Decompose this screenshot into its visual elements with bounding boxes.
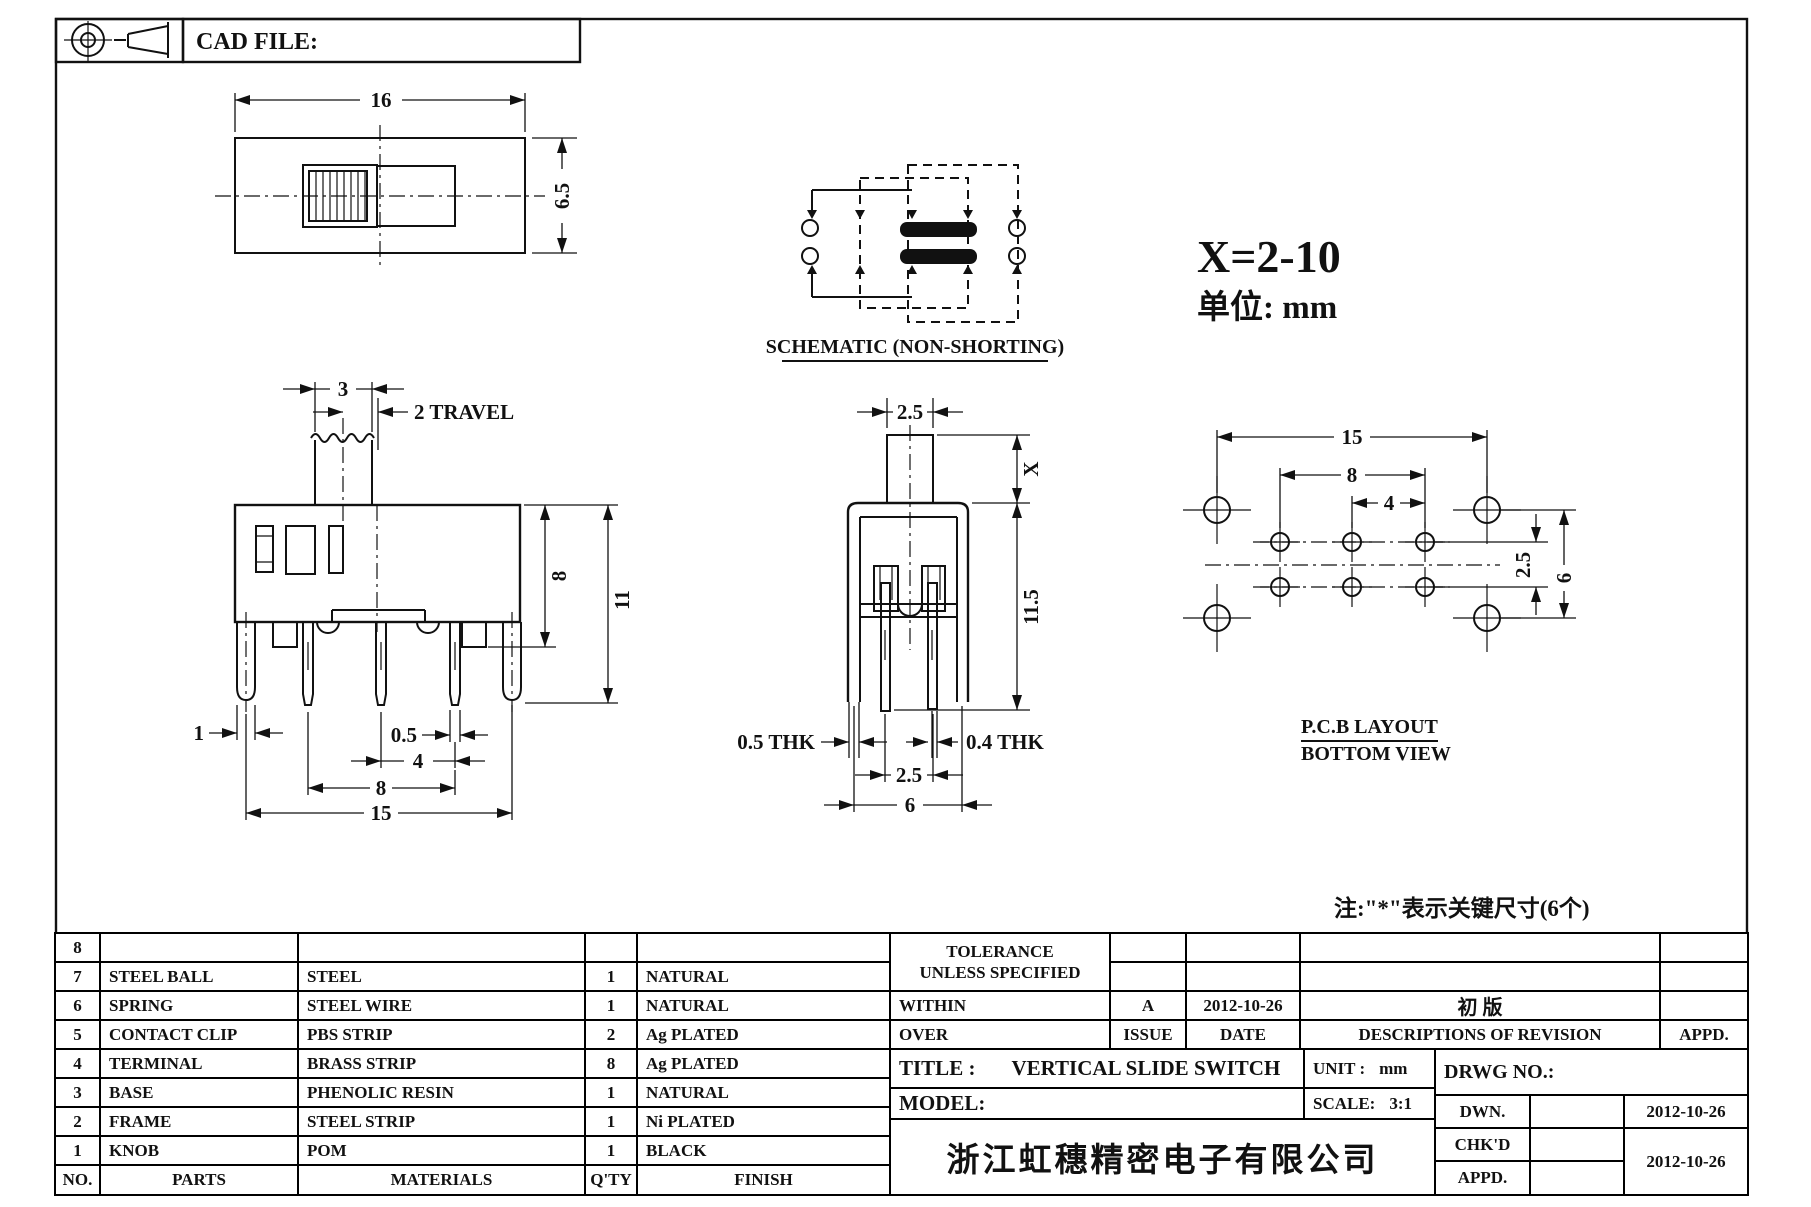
pcb-label-line2: BOTTOM VIEW xyxy=(1301,743,1451,765)
tolerance-line1: TOLERANCE xyxy=(946,941,1053,962)
parts-row-material: STEEL xyxy=(298,962,585,991)
parts-row-qty: 1 xyxy=(585,991,637,1020)
parts-row-part: SPRING xyxy=(100,991,298,1020)
parts-header-no: NO. xyxy=(55,1165,100,1195)
parts-row-no: 6 xyxy=(55,991,100,1020)
model-cell: MODEL: xyxy=(890,1088,1304,1119)
issue-header: ISSUE xyxy=(1110,1020,1186,1049)
revision-empty-cell xyxy=(1186,962,1300,991)
parts-row-no: 5 xyxy=(55,1020,100,1049)
unit-value: mm xyxy=(1379,1059,1407,1079)
scale-value: 3:1 xyxy=(1389,1094,1412,1114)
parts-row-part xyxy=(100,933,298,962)
appd-header: APPD. xyxy=(1660,1020,1748,1049)
parts-row-qty: 2 xyxy=(585,1020,637,1049)
parts-header-qty: Q'TY xyxy=(585,1165,637,1195)
title-value: VERTICAL SLIDE SWITCH xyxy=(1011,1056,1280,1081)
dim-pin-gap: 2.5 xyxy=(896,763,922,787)
schematic-label: SCHEMATIC (NON-SHORTING) xyxy=(766,336,1064,358)
title-block-table: 8 7 STEEL BALL STEEL 1 NATURAL 6 SPRING … xyxy=(55,933,1748,1195)
x-range-note: X=2-10 xyxy=(1197,231,1341,282)
dwn-date: 2012-10-26 xyxy=(1624,1095,1748,1128)
dim-leg-span: 6 xyxy=(905,793,916,817)
chkd-appd-date: 2012-10-26 xyxy=(1624,1128,1748,1195)
dim-total-height: 11 xyxy=(610,590,634,610)
parts-row-no: 1 xyxy=(55,1136,100,1165)
dim-knob-width: 3 xyxy=(338,377,349,401)
title-cell: TITLE : VERTICAL SLIDE SWITCH xyxy=(890,1049,1304,1088)
dwn-signature xyxy=(1530,1095,1624,1128)
scale-cell: SCALE: 3:1 xyxy=(1304,1088,1435,1119)
revision-empty-cell xyxy=(1660,962,1748,991)
parts-row-part: KNOB xyxy=(100,1136,298,1165)
parts-row-part: FRAME xyxy=(100,1107,298,1136)
parts-row-material: STEEL STRIP xyxy=(298,1107,585,1136)
dim-pcb-row-gap: 2.5 xyxy=(1511,552,1535,578)
parts-row-finish: NATURAL xyxy=(637,1078,890,1107)
tolerance-over-label: OVER xyxy=(890,1020,1110,1049)
dim-pcb-pin-pitch: 4 xyxy=(1384,491,1395,515)
dim-top-height: 6.5 xyxy=(550,183,574,209)
tolerance-line2: UNLESS SPECIFIED xyxy=(919,962,1080,983)
parts-row-qty: 8 xyxy=(585,1049,637,1078)
parts-row-part: STEEL BALL xyxy=(100,962,298,991)
pcb-layout: 15 8 4 2.5 6 P.C.B LAYOUT BOTTOM VIEW xyxy=(1183,425,1576,765)
parts-row-no: 8 xyxy=(55,933,100,962)
top-view: 16 6.5 xyxy=(215,87,577,267)
parts-row-finish xyxy=(637,933,890,962)
revision-empty-cell xyxy=(1300,962,1660,991)
revision-appd-empty xyxy=(1660,991,1748,1020)
unit-label: UNIT : xyxy=(1313,1059,1365,1079)
dim-side-body-height: 11.5 xyxy=(1019,589,1043,625)
parts-row-finish: Ag PLATED xyxy=(637,1049,890,1078)
drwg-no-cell: DRWG NO.: xyxy=(1435,1049,1748,1095)
parts-header-parts: PARTS xyxy=(100,1165,298,1195)
projection-symbol-box: CAD FILE: xyxy=(56,19,580,62)
dim-pcb-outer-gap: 6 xyxy=(1552,573,1576,584)
parts-row-material: PBS STRIP xyxy=(298,1020,585,1049)
dim-peg-span: 15 xyxy=(371,801,392,825)
chkd-signature xyxy=(1530,1128,1624,1161)
revision-empty-cell xyxy=(1660,933,1748,962)
descriptions-header: DESCRIPTIONS OF REVISION xyxy=(1300,1020,1660,1049)
dim-stem-height: X xyxy=(1019,461,1043,476)
date-header: DATE xyxy=(1186,1020,1300,1049)
dim-pin-width: 0.5 xyxy=(391,723,417,747)
pcb-label-line1: P.C.B LAYOUT xyxy=(1301,716,1439,738)
parts-row-finish: Ni PLATED xyxy=(637,1107,890,1136)
dim-top-width: 16 xyxy=(371,88,392,112)
parts-row-part: CONTACT CLIP xyxy=(100,1020,298,1049)
revision-empty-cell xyxy=(1186,933,1300,962)
parts-row-qty: 1 xyxy=(585,1136,637,1165)
parts-row-finish: NATURAL xyxy=(637,962,890,991)
scale-label: SCALE: xyxy=(1313,1094,1375,1114)
parts-row-finish: NATURAL xyxy=(637,991,890,1020)
schematic: SCHEMATIC (NON-SHORTING) xyxy=(766,165,1064,361)
dim-pcb-pin-span: 8 xyxy=(1347,463,1358,487)
dim-pin-span: 8 xyxy=(376,776,387,800)
side-view: 2.5 X 11.5 0.5 THK 0.4 THK 2.5 6 xyxy=(737,398,1044,817)
cad-file-label: CAD FILE: xyxy=(196,29,318,55)
parts-row-material xyxy=(298,933,585,962)
parts-row-material: STEEL WIRE xyxy=(298,991,585,1020)
dim-thk-left: 0.5 THK xyxy=(737,730,815,754)
parts-row-qty xyxy=(585,933,637,962)
dim-pin-pitch: 4 xyxy=(413,749,424,773)
parts-row-qty: 1 xyxy=(585,1078,637,1107)
issue-value: A xyxy=(1110,991,1186,1020)
dim-pcb-outer-span: 15 xyxy=(1342,425,1363,449)
parts-header-finish: FINISH xyxy=(637,1165,890,1195)
appd-signature xyxy=(1530,1161,1624,1195)
dim-travel: 2 TRAVEL xyxy=(414,400,514,424)
dwn-label: DWN. xyxy=(1435,1095,1530,1128)
unit-note: 单位: mm xyxy=(1197,288,1337,326)
drawing-sheet: CAD FILE: 16 6.5 SCHEMATIC (N xyxy=(0,0,1811,1207)
parts-row-no: 7 xyxy=(55,962,100,991)
unit-cell: UNIT : mm xyxy=(1304,1049,1435,1088)
issue-date-value: 2012-10-26 xyxy=(1186,991,1300,1020)
parts-row-finish: Ag PLATED xyxy=(637,1020,890,1049)
key-dimension-note: 注:"*"表示关键尺寸(6个) xyxy=(1334,895,1590,921)
parts-row-material: BRASS STRIP xyxy=(298,1049,585,1078)
schematic-arrows xyxy=(807,210,1022,274)
revision-description-value: 初 版 xyxy=(1300,991,1660,1020)
drawing-canvas: CAD FILE: 16 6.5 SCHEMATIC (N xyxy=(0,0,1811,933)
revision-empty-cell xyxy=(1110,933,1186,962)
company-name: 浙江虹穗精密电子有限公司 xyxy=(890,1119,1435,1195)
parts-row-no: 3 xyxy=(55,1078,100,1107)
parts-row-qty: 1 xyxy=(585,962,637,991)
parts-row-part: TERMINAL xyxy=(100,1049,298,1078)
tolerance-within-label: WITHIN xyxy=(890,991,1110,1020)
dim-stem-width: 2.5 xyxy=(897,400,923,424)
front-view: 3 2 TRAVEL 8 11 1 0.5 4 xyxy=(194,377,635,825)
parts-row-material: PHENOLIC RESIN xyxy=(298,1078,585,1107)
dim-thk-right: 0.4 THK xyxy=(966,730,1044,754)
parts-header-materials: MATERIALS xyxy=(298,1165,585,1195)
parts-row-finish: BLACK xyxy=(637,1136,890,1165)
appd-label-2: APPD. xyxy=(1435,1161,1530,1195)
sheet-border xyxy=(56,19,1747,933)
parts-row-material: POM xyxy=(298,1136,585,1165)
parts-row-part: BASE xyxy=(100,1078,298,1107)
parts-row-no: 4 xyxy=(55,1049,100,1078)
dim-body-height: 8 xyxy=(547,571,571,582)
dim-peg-width: 1 xyxy=(194,721,205,745)
revision-empty-cell xyxy=(1300,933,1660,962)
first-angle-projection-icon xyxy=(64,21,168,62)
chkd-label: CHK'D xyxy=(1435,1128,1530,1161)
parts-row-no: 2 xyxy=(55,1107,100,1136)
revision-empty-cell xyxy=(1110,962,1186,991)
title-label: TITLE : xyxy=(899,1056,975,1081)
tolerance-cell: TOLERANCE UNLESS SPECIFIED xyxy=(890,933,1110,991)
parts-row-qty: 1 xyxy=(585,1107,637,1136)
